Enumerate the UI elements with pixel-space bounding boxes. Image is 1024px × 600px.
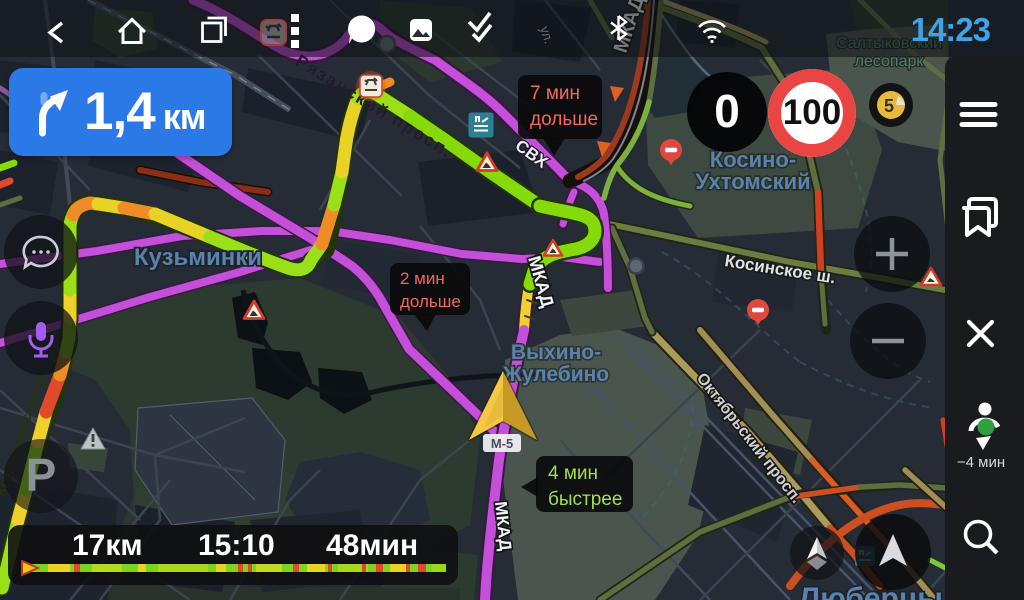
svg-text:Ухтомский: Ухтомский <box>695 169 810 194</box>
svg-text:14:23: 14:23 <box>911 11 991 48</box>
svg-text:Выхино-: Выхино- <box>511 341 601 364</box>
svg-text:−4 мин: −4 мин <box>957 454 1005 471</box>
svg-text:Кузьминки: Кузьминки <box>134 244 262 271</box>
svg-text:5: 5 <box>884 96 894 116</box>
